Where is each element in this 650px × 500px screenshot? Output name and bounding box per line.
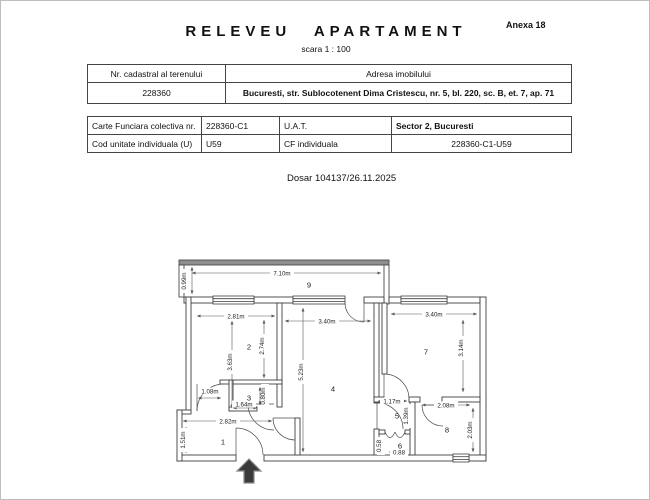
room-label-4: 4: [331, 385, 335, 394]
room-label-2: 2: [247, 343, 251, 352]
dim-room5-height: 1.39m: [403, 407, 410, 424]
window-room4: [293, 296, 345, 304]
balcony-parapet: [179, 260, 389, 265]
dim-hall-width: 2.82m: [219, 418, 236, 425]
room-label-6: 6: [398, 442, 402, 451]
dim-room4-height: 5.23m: [298, 363, 305, 380]
door-balcony: [345, 303, 364, 322]
room-label-7: 7: [424, 348, 428, 357]
room-label-9: 9: [307, 281, 311, 290]
window-room7: [401, 296, 447, 304]
dim-room6-height: 0.58: [376, 439, 383, 452]
dim-room3-height: 0.80m: [260, 387, 267, 404]
dim-room8-width: 2.08m: [437, 402, 454, 409]
floor-plan: 7.10m 0.99m 2.81m 3.63m 2.74m 3.40m 5.23…: [1, 1, 650, 500]
entrance-arrow: [237, 459, 261, 483]
window-room2: [213, 296, 254, 304]
window-room8: [453, 454, 469, 462]
dim-room2-width: 2.81m: [227, 313, 244, 320]
dim-room5-width: 1.17m: [383, 398, 400, 405]
door-room4: [273, 418, 295, 440]
dim-room7-height: 3.14m: [458, 339, 465, 356]
door-room7: [384, 374, 409, 399]
interior-walls: [220, 303, 480, 455]
dim-room7-width: 3.40m: [425, 311, 442, 318]
dim-hall-height: 1.51m: [180, 431, 187, 448]
dim-room2-height-right: 2.74m: [259, 337, 266, 354]
dim-balcony-width: 7.10m: [273, 270, 290, 277]
dim-hall-door: 1.08m: [201, 388, 218, 395]
dim-room2-height-left: 3.63m: [227, 353, 234, 370]
dim-room4-width: 3.40m: [318, 318, 335, 325]
door-room6-bifold: [385, 432, 405, 438]
document-page: RELEVEU APARTAMENT Anexa 18 scara 1 : 10…: [0, 0, 650, 500]
dim-balcony-depth: 0.99m: [181, 272, 188, 289]
room-label-8: 8: [445, 426, 449, 435]
room-label-5: 5: [395, 412, 399, 421]
door-entrance: [236, 428, 263, 455]
room-label-3: 3: [247, 394, 251, 403]
dim-room8-height: 2.03m: [467, 421, 474, 438]
room-label-1: 1: [221, 438, 225, 447]
